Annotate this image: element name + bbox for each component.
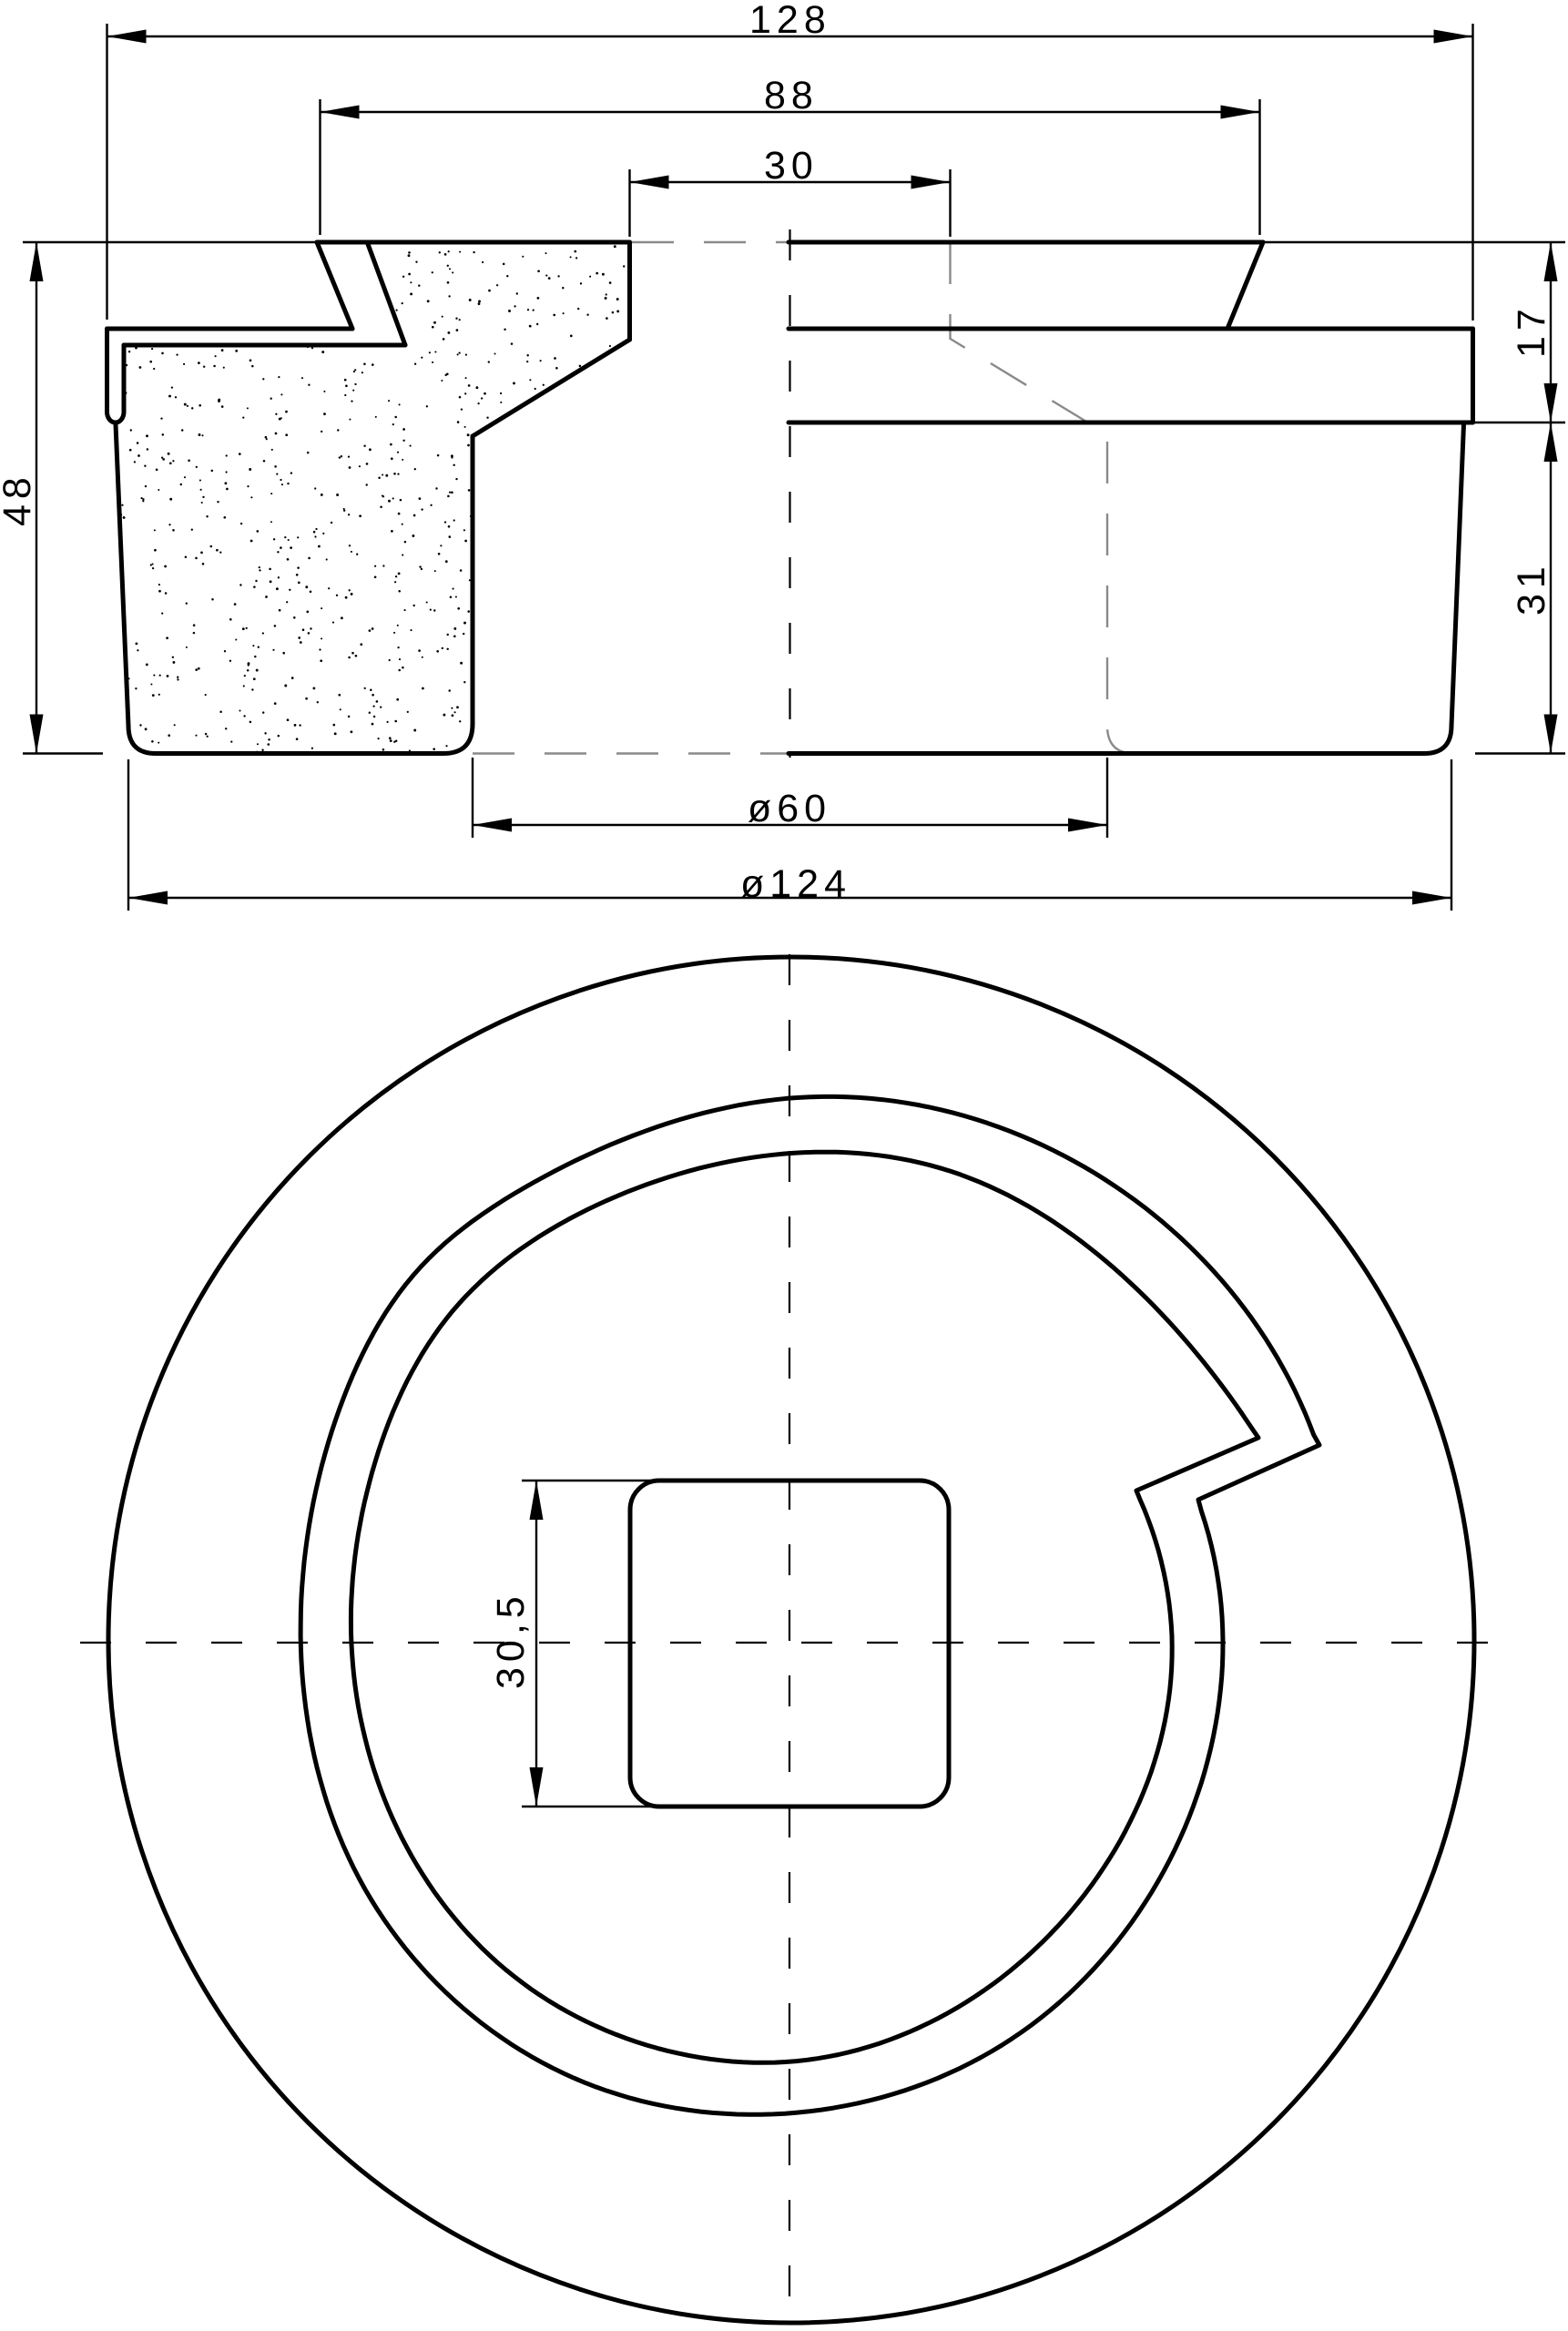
svg-text:ø124: ø124 [740, 862, 851, 906]
svg-text:ø60: ø60 [748, 787, 831, 830]
svg-text:30,5: 30,5 [489, 1591, 533, 1689]
svg-text:17: 17 [1510, 303, 1553, 358]
svg-text:128: 128 [749, 0, 831, 42]
svg-text:31: 31 [1510, 561, 1553, 616]
svg-text:48: 48 [0, 472, 39, 526]
svg-text:88: 88 [764, 74, 819, 117]
svg-text:30: 30 [764, 144, 819, 188]
